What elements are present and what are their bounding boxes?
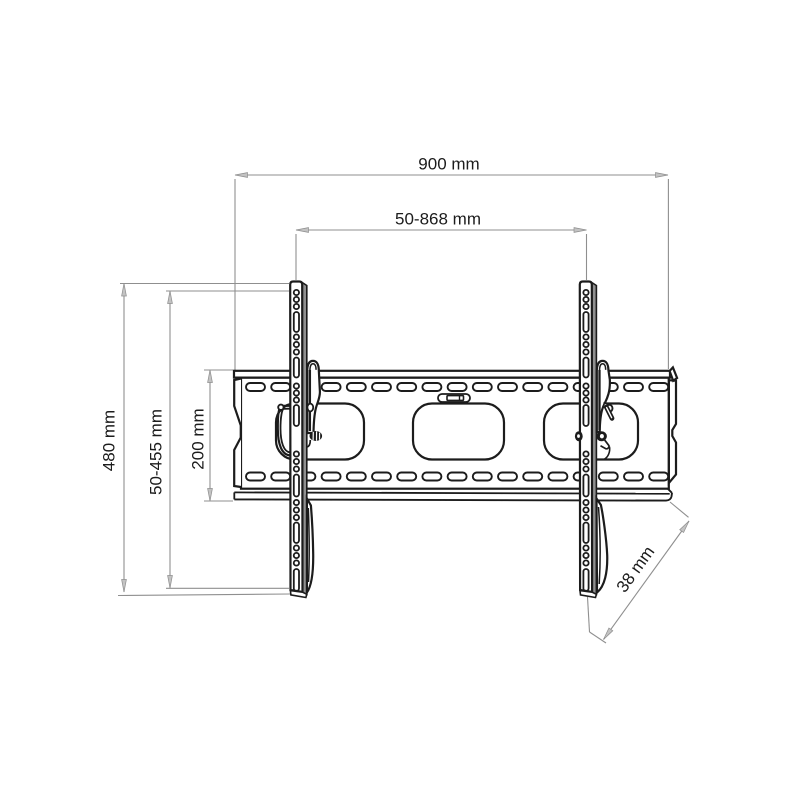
- svg-text:200 mm: 200 mm: [189, 408, 208, 469]
- svg-text:900 mm: 900 mm: [418, 155, 479, 174]
- svg-text:50-455 mm: 50-455 mm: [147, 409, 166, 495]
- svg-text:50-868 mm: 50-868 mm: [395, 210, 481, 229]
- svg-text:480 mm: 480 mm: [100, 410, 119, 471]
